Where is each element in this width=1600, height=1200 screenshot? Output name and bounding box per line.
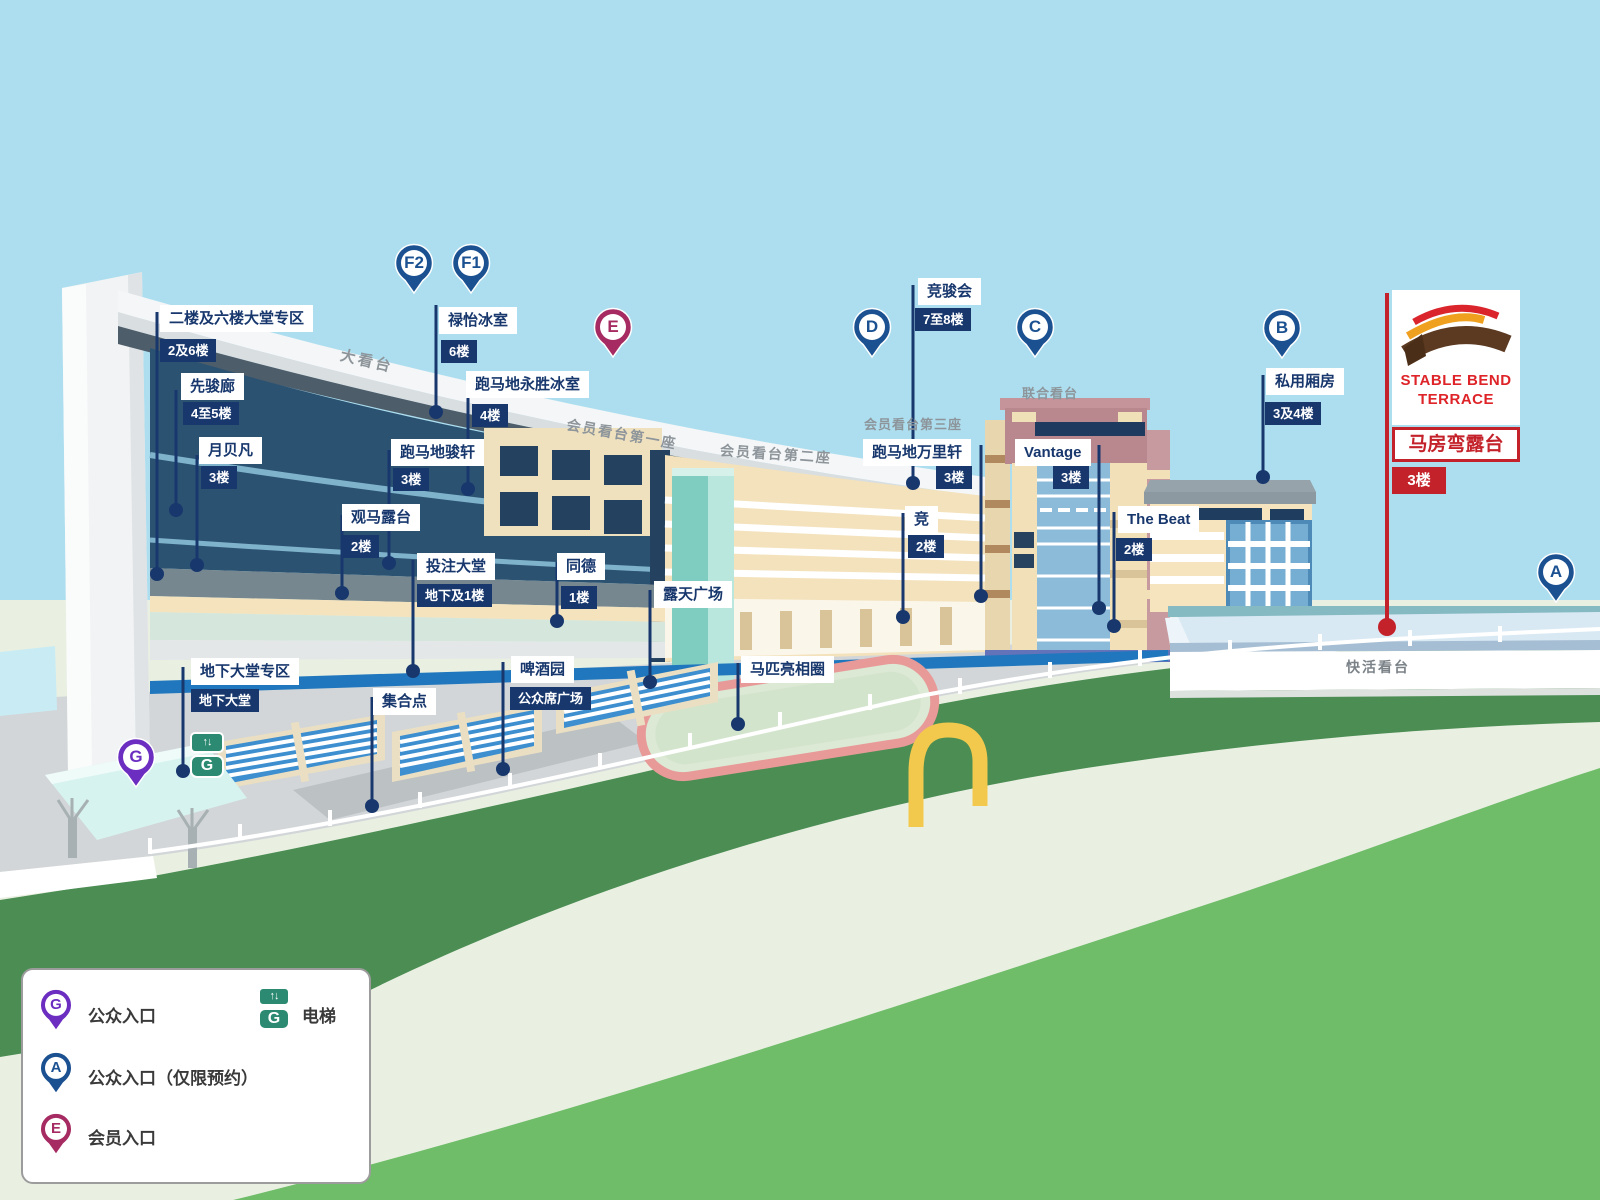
legend-public-entrance-booking: 公众入口（仅限预约） — [88, 1064, 258, 1089]
elevator-letter: G — [190, 755, 224, 778]
label-parade-ring: 马匹亮相圈 — [741, 656, 834, 683]
legend-pin-a: A — [39, 1051, 73, 1095]
floor-gallery: 2楼 — [908, 535, 944, 558]
legend-elevator-icon: ↑↓ G — [258, 987, 290, 1030]
floor-private-boxes: 3及4楼 — [1265, 402, 1321, 425]
pin-g[interactable]: G — [116, 737, 156, 789]
floor-moon-koon: 3楼 — [201, 466, 237, 489]
pin-f1-letter: F1 — [451, 243, 491, 283]
floor-million-hin: 3楼 — [936, 466, 972, 489]
pin-d[interactable]: D — [852, 307, 892, 359]
legend-member-entrance: 会员入口 — [88, 1124, 156, 1149]
label-beer-garden: 啤酒园 — [511, 656, 574, 683]
venue-map: 大看台 会员看台第一座 会员看台第二座 会员看台第三座 联合看台 快活看台 二楼… — [0, 0, 1600, 1200]
pin-e-letter: E — [593, 307, 633, 347]
floor-wing-sing: 4楼 — [472, 404, 508, 427]
stable-bend-logo-line2: TERRACE — [1392, 390, 1520, 409]
legend-pin-e-letter: E — [39, 1112, 73, 1146]
stable-bend-ribbon-icon — [1392, 290, 1520, 366]
floor-vantage: 3楼 — [1053, 466, 1089, 489]
label-wing-sing: 跑马地永胜冰室 — [466, 371, 589, 398]
floor-the-beat: 2楼 — [1116, 538, 1152, 561]
legend-elevator-label: 电梯 — [302, 1002, 336, 1027]
legend-pin-g-letter: G — [39, 988, 73, 1022]
legend-pin-a-letter: A — [39, 1051, 73, 1085]
legend-pin-g: G — [39, 988, 73, 1032]
legend-elevator-letter: G — [258, 1008, 290, 1030]
label-stable-bend-terrace: 马房弯露台 — [1392, 427, 1520, 462]
label-tung-tak: 同德 — [557, 553, 605, 580]
label-private-boxes: 私用厢房 — [1266, 368, 1344, 395]
label-luk-yi: 禄怡冰室 — [439, 307, 517, 334]
label-lobby-2-6: 二楼及六楼大堂专区 — [160, 305, 313, 332]
label-meeting-point: 集合点 — [373, 688, 436, 715]
floor-ground-lobby: 地下大堂 — [191, 689, 259, 712]
floor-chun-hin: 3楼 — [393, 468, 429, 491]
label-terrace-2f: 观马露台 — [342, 504, 420, 531]
label-racing-club: 竞骏会 — [918, 278, 981, 305]
label-million-hin: 跑马地万里轩 — [863, 439, 971, 466]
label-chun-hin: 跑马地骏轩 — [391, 439, 484, 466]
elevator-icon: ↑↓ G — [190, 732, 224, 778]
pin-e[interactable]: E — [593, 307, 633, 359]
legend-public-entrance: 公众入口 — [88, 1002, 156, 1027]
elevator-arrows: ↑↓ — [190, 732, 224, 753]
pin-b-letter: B — [1262, 308, 1302, 348]
pin-f2-letter: F2 — [394, 243, 434, 283]
legend-elevator-arrows: ↑↓ — [258, 987, 290, 1006]
label-gallery: 竞 — [905, 506, 938, 533]
pin-a[interactable]: A — [1536, 552, 1576, 604]
happy-stand-text: 快活看台 — [1346, 657, 1410, 677]
pin-c-letter: C — [1015, 307, 1055, 347]
label-ground-lobby: 地下大堂专区 — [191, 658, 299, 685]
pin-b[interactable]: B — [1262, 308, 1302, 360]
label-moon-koon: 月贝凡 — [199, 437, 262, 464]
label-open-plaza: 露天广场 — [654, 581, 732, 608]
floor-pioneers: 4至5楼 — [183, 402, 239, 425]
floor-betting-hall: 地下及1楼 — [417, 584, 492, 607]
pin-c[interactable]: C — [1015, 307, 1055, 359]
floor-terrace-2f: 2楼 — [343, 535, 379, 558]
label-pioneers: 先骏廊 — [181, 373, 244, 400]
label-betting-hall: 投注大堂 — [417, 553, 495, 580]
stable-bend-logo-line1: STABLE BEND — [1392, 371, 1520, 390]
floor-luk-yi: 6楼 — [441, 340, 477, 363]
floor-beer-garden: 公众席广场 — [510, 687, 591, 710]
stable-bend-dot — [1378, 618, 1396, 636]
legend-pin-e: E — [39, 1112, 73, 1156]
floor-racing-club: 7至8楼 — [915, 308, 971, 331]
pin-f2[interactable]: F2 — [394, 243, 434, 295]
label-vantage: Vantage — [1015, 439, 1091, 466]
pin-d-letter: D — [852, 307, 892, 347]
floor-stable-bend-terrace: 3楼 — [1392, 467, 1446, 494]
floor-lobby-2-6: 2及6楼 — [160, 339, 216, 362]
label-the-beat: The Beat — [1118, 506, 1199, 533]
members-stand-3-text: 会员看台第三座 — [864, 414, 962, 433]
stable-bend-terrace-logo: STABLE BEND TERRACE — [1392, 290, 1520, 425]
united-stand-text: 联合看台 — [1022, 383, 1078, 402]
floor-tung-tak: 1楼 — [561, 586, 597, 609]
pin-a-letter: A — [1536, 552, 1576, 592]
pin-f1[interactable]: F1 — [451, 243, 491, 295]
pin-g-letter: G — [116, 737, 156, 777]
